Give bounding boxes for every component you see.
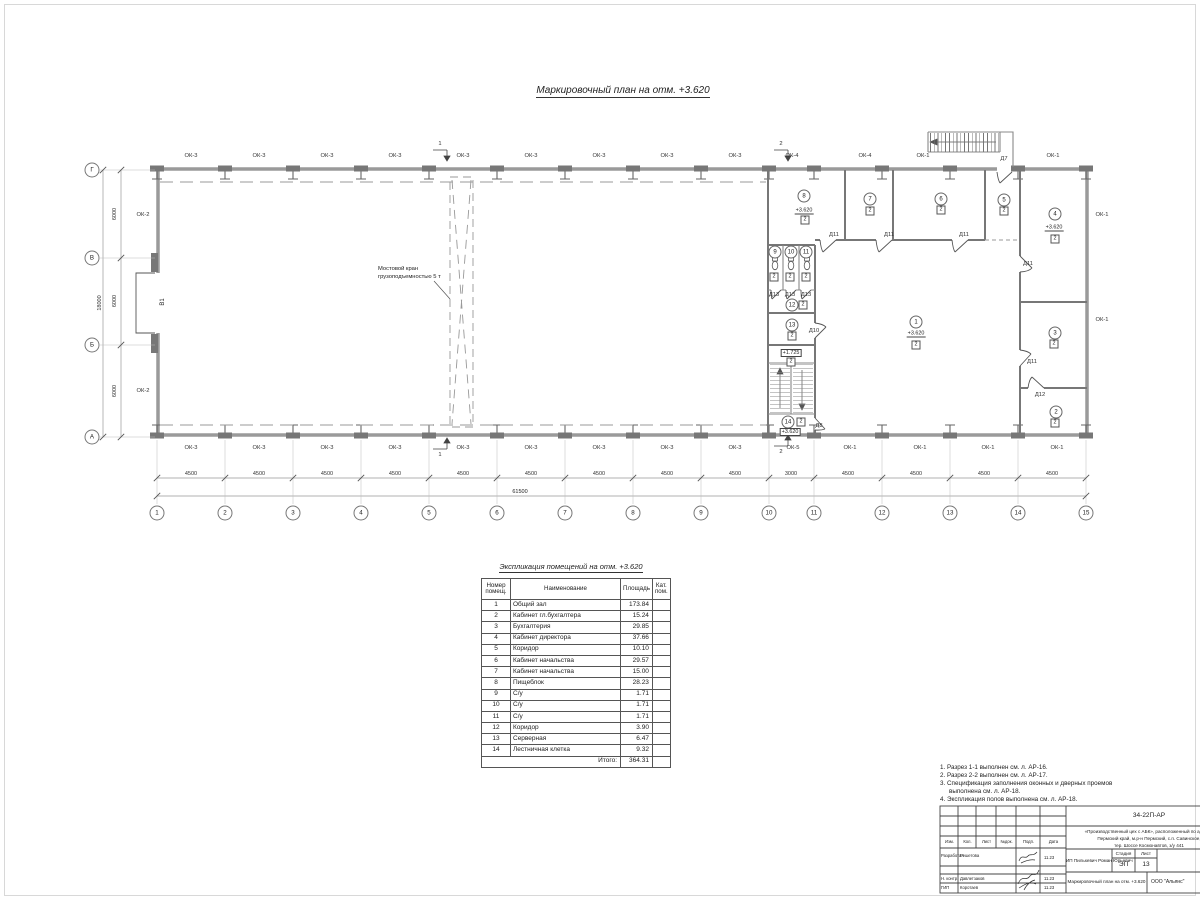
table-row: 2 Кабинет гл.бухгалтера 15.24 (482, 611, 671, 622)
cell-cat (652, 622, 670, 633)
date-developer: 11.23 (1044, 855, 1054, 860)
grid-bubble: 15 (1079, 506, 1094, 521)
sheet-number: 13 (1135, 861, 1157, 868)
col-data: Дата (1041, 839, 1066, 844)
window-label: ОК-3 (320, 445, 333, 451)
category-box: 2 (787, 358, 796, 367)
col-header-name: Наименование (511, 579, 621, 600)
cell-name: Кабинет директора (511, 633, 621, 644)
cell-cat (652, 655, 670, 666)
window-label: ОК-3 (592, 153, 605, 159)
doc-number: 34-22П-АР (1066, 812, 1200, 819)
section-digit: 2 (779, 141, 782, 147)
window-label: ОК-3 (592, 445, 605, 451)
cell-area: 1.71 (621, 700, 653, 711)
project-desc-3: тер. Шоссе Космонавтов, з/у 441 (1066, 843, 1200, 848)
grid-bubble: Г (85, 163, 100, 178)
table-row: 6 Кабинет начальства 29.57 (482, 655, 671, 666)
cell-name: Серверная (511, 734, 621, 745)
grid-bubble: 11 (807, 506, 822, 521)
col-kol: Кол. (959, 839, 976, 844)
col-header-area: Площадь (621, 579, 653, 600)
room-number: 3 (1049, 327, 1062, 340)
grid-bubble: 2 (218, 506, 233, 521)
window-label: ОК-3 (524, 153, 537, 159)
window-label: ОК-3 (660, 445, 673, 451)
role-gip: ГИП (941, 885, 949, 890)
stair-flight-right (793, 364, 813, 413)
cell-cat (652, 644, 670, 655)
crane (160, 177, 766, 427)
door-label: Д11 (959, 232, 969, 238)
dimension-text: 4500 (321, 471, 333, 477)
notes-block: 1. Разрез 1-1 выполнен см. л. АР-16.2. Р… (940, 764, 1116, 804)
category-box: 2 (1051, 419, 1060, 428)
cell-cat (652, 678, 670, 689)
category-box: 2 (799, 301, 808, 310)
dimension-text: 4500 (389, 471, 401, 477)
page-title: Маркировочный план на отм. +3.620 (473, 80, 773, 98)
room-number: 5 (998, 194, 1011, 207)
cell-cat (652, 723, 670, 734)
table-row: 9 С/у 1.71 (482, 689, 671, 700)
category-box: 2 (788, 332, 797, 341)
cell-num: 11 (482, 711, 511, 722)
grid-bubble: 9 (694, 506, 709, 521)
door-label: Д11 (1023, 261, 1033, 267)
room-number: 1 (910, 316, 923, 329)
dimension-text: 18000 (97, 295, 103, 310)
cell-area: 28.23 (621, 678, 653, 689)
cell-area: 29.85 (621, 622, 653, 633)
toilet-symbols (772, 258, 810, 270)
room-number: 10 (785, 246, 798, 259)
cell-area: 9.32 (621, 745, 653, 756)
name-gip: Коротаев (960, 885, 978, 890)
stage-value: ЭП (1112, 861, 1135, 868)
room-number: 14 (782, 416, 795, 429)
window-label: ОК-1 (1050, 445, 1063, 451)
door-label: Д8 (815, 423, 822, 429)
cell-cat (652, 611, 670, 622)
cell-num: 4 (482, 633, 511, 644)
window-label: ОК-3 (728, 153, 741, 159)
dimension-text: 4500 (729, 471, 741, 477)
cell-cat (652, 689, 670, 700)
cell-num: 5 (482, 644, 511, 655)
cell-name: Бухгалтерия (511, 622, 621, 633)
grid-bubble: 3 (286, 506, 301, 521)
cell-num: 3 (482, 622, 511, 633)
room-number: 11 (800, 246, 813, 259)
door-label: Д7 (1000, 156, 1007, 162)
table-row: 1 Общий зал 173.84 (482, 600, 671, 611)
col-podp: Подп. (1017, 839, 1040, 844)
cell-area: 15.24 (621, 611, 653, 622)
window-label: ОК-3 (388, 153, 401, 159)
drawing-sheet: Маркировочный план на отм. +3.620 Экспли… (0, 0, 1200, 900)
door-label: Д13 (785, 292, 795, 298)
level-mark: +3.620 (907, 331, 926, 338)
dimension-text: 4500 (978, 471, 990, 477)
section-digit: 1 (438, 141, 441, 147)
cell-num: 6 (482, 655, 511, 666)
cell-num: 13 (482, 734, 511, 745)
grid-bubble: 7 (558, 506, 573, 521)
cell-name: Кабинет начальства (511, 667, 621, 678)
dimension-text: 4500 (593, 471, 605, 477)
cell-area: 15.00 (621, 667, 653, 678)
note-line: 4. Экспликация полов выполнена см. л. АР… (940, 796, 1116, 804)
stage-label: Стадия (1112, 851, 1135, 856)
project-desc-2: Пермский край, м.р-н Пермский, с.п. Сави… (1066, 836, 1200, 841)
category-box: 2 (912, 341, 921, 350)
name-ncontrol: Давлетзаков (960, 876, 985, 881)
cell-name: С/у (511, 700, 621, 711)
cell-name: Общий зал (511, 600, 621, 611)
grid-bubble: 14 (1011, 506, 1026, 521)
cell-cat (652, 745, 670, 756)
room-number: 2 (1050, 406, 1063, 419)
table-row: 7 Кабинет начальства 15.00 (482, 667, 671, 678)
room-explication-table: Номер помещ. Наименование Площадь Кат. п… (481, 578, 671, 768)
window-label: ОК-3 (660, 153, 673, 159)
signatures (1018, 852, 1039, 890)
cell-num: 1 (482, 600, 511, 611)
dimension-text: 4500 (661, 471, 673, 477)
room-number: 12 (786, 299, 799, 312)
category-box: 2 (1050, 340, 1059, 349)
cell-num: 14 (482, 745, 511, 756)
category-box: 2 (797, 418, 806, 427)
total-value: 364.31 (621, 756, 653, 767)
category-box: 2 (786, 273, 795, 282)
cell-area: 10.10 (621, 644, 653, 655)
crane-annotation-line: грузоподъемностью 5 т (378, 274, 441, 282)
grid-bubble: В (85, 251, 100, 266)
level-mark: +3.620 (1045, 225, 1064, 232)
table-title: Экспликация помещений на отм. +3.620 (441, 556, 701, 574)
cell-name: Кабинет начальства (511, 655, 621, 666)
level-mark: +3.620 (795, 208, 814, 215)
table-row: 14 Лестничная клетка 9.32 (482, 745, 671, 756)
cell-num: 7 (482, 667, 511, 678)
grid-bubble: 6 (490, 506, 505, 521)
cell-area: 1.71 (621, 689, 653, 700)
cell-area: 6.47 (621, 734, 653, 745)
grid-bubble: 8 (626, 506, 641, 521)
table-row: 5 Коридор 10.10 (482, 644, 671, 655)
window-label: ОК-3 (252, 153, 265, 159)
dimension-text: 4500 (457, 471, 469, 477)
grid-bubble: 12 (875, 506, 890, 521)
window-label: ОК-3 (388, 445, 401, 451)
total-row: Итого: 364.31 (482, 756, 671, 767)
table-row: 12 Коридор 3.90 (482, 723, 671, 734)
level-mark: +1.725 (781, 349, 802, 357)
table-row: 10 С/у 1.71 (482, 700, 671, 711)
window-label: ОК-3 (456, 445, 469, 451)
window-label: ОК-1 (981, 445, 994, 451)
project-desc-1: «Производственный цех с АБК», расположен… (1066, 829, 1200, 834)
org-name: ООО "Альянс" (1151, 879, 1184, 885)
category-box: 2 (770, 273, 779, 282)
table-row: 3 Бухгалтерия 29.85 (482, 622, 671, 633)
cell-name: Коридор (511, 644, 621, 655)
crane-annotation-line: Мостовой кран (378, 266, 441, 274)
sheet-label: Лист (1135, 851, 1157, 856)
table-row: 13 Серверная 6.47 (482, 734, 671, 745)
client-name: ИП Пилькевич Роман Юрьевич (1066, 858, 1112, 863)
window-label: ОК-3 (728, 445, 741, 451)
window-label: ОК-1 (1095, 212, 1108, 218)
total-dimension: 61500 (512, 489, 527, 495)
stair-flight-left (770, 364, 790, 413)
window-label: ОК-1 (1046, 153, 1059, 159)
grid-bubble: Б (85, 338, 100, 353)
cell-name: Коридор (511, 723, 621, 734)
dimension-text: 4500 (525, 471, 537, 477)
cell-name: Лестничная клетка (511, 745, 621, 756)
cell-cat (652, 600, 670, 611)
window-label: ОК-3 (184, 153, 197, 159)
cell-num: 8 (482, 678, 511, 689)
grid-bubble: 13 (943, 506, 958, 521)
dimension-text: 4500 (910, 471, 922, 477)
door-label: Д10 (809, 328, 819, 334)
category-box: 2 (802, 273, 811, 282)
grid-bubble: 1 (150, 506, 165, 521)
category-box: 2 (1000, 207, 1009, 216)
cell-cat (652, 667, 670, 678)
cell-name: Пищеблок (511, 678, 621, 689)
dimension-text: 4500 (253, 471, 265, 477)
cell-num: 2 (482, 611, 511, 622)
door-label: Д11 (884, 232, 894, 238)
cell-area: 37.66 (621, 633, 653, 644)
dimension-text: 4500 (842, 471, 854, 477)
dimension-text: 4500 (185, 471, 197, 477)
dimension-text: 6000 (112, 385, 118, 397)
category-box: 2 (937, 206, 946, 215)
note-line: 1. Разрез 1-1 выполнен см. л. АР-16. (940, 764, 1116, 772)
role-ncontrol: Н. контр. (941, 876, 958, 881)
dimension-text: 4500 (1046, 471, 1058, 477)
category-box: 2 (1051, 235, 1060, 244)
section-digit: 2 (779, 449, 782, 455)
level-mark: +3.620 (780, 428, 801, 436)
cell-cat (652, 633, 670, 644)
section-digit: 1 (438, 452, 441, 458)
room-number: 13 (786, 319, 799, 332)
col-list: Лист (977, 839, 996, 844)
grid-bubble: 5 (422, 506, 437, 521)
columns (150, 166, 1093, 439)
window-label: ОК-2 (136, 388, 149, 394)
cell-name: С/у (511, 711, 621, 722)
col-header-num: Номер помещ. (482, 579, 511, 600)
dimension-text: 6000 (112, 208, 118, 220)
cell-num: 9 (482, 689, 511, 700)
window-label: ОК-2 (136, 212, 149, 218)
gate-label: В1 (160, 298, 166, 305)
door-label: Д13 (801, 292, 811, 298)
window-label: ОК-3 (184, 445, 197, 451)
dimension-text: 3000 (785, 471, 797, 477)
cell-name: Кабинет гл.бухгалтера (511, 611, 621, 622)
cell-num: 10 (482, 700, 511, 711)
window-label: ОК-1 (843, 445, 856, 451)
window-label: ОК-3 (456, 153, 469, 159)
room-number: 9 (769, 246, 782, 259)
crane-annotation: Мостовой кран грузоподъемностью 5 т (378, 266, 441, 281)
col-header-cat: Кат. пом. (652, 579, 670, 600)
window-label: ОК-3 (252, 445, 265, 451)
cell-area: 173.84 (621, 600, 653, 611)
window-label: ОК-1 (913, 445, 926, 451)
exterior-walls (155, 166, 1088, 436)
col-izm: Изм. (941, 839, 958, 844)
dimension-text: 6000 (112, 295, 118, 307)
cell-cat (652, 711, 670, 722)
cell-cat (652, 734, 670, 745)
room-number: 8 (798, 190, 811, 203)
door-label: Д13 (769, 292, 779, 298)
window-label: ОК-3 (524, 445, 537, 451)
cell-cat (652, 700, 670, 711)
table-row: 4 Кабинет директора 37.66 (482, 633, 671, 644)
window-label: ОК-1 (916, 153, 929, 159)
sheet-name: Маркировочный план на отм. +3.620 (1066, 879, 1147, 884)
exterior-stair-treads (930, 133, 1000, 152)
window-label: ОК-1 (1095, 317, 1108, 323)
name-developer: Решетова (960, 853, 979, 858)
window-label: ОК-3 (320, 153, 333, 159)
window-label: ОК-5 (786, 445, 799, 451)
section-marks (433, 150, 791, 449)
cell-num: 12 (482, 723, 511, 734)
category-box: 2 (866, 207, 875, 216)
door-label: Д11 (829, 232, 839, 238)
cell-area: 1.71 (621, 711, 653, 722)
col-doc: №док. (997, 839, 1016, 844)
cell-name: С/у (511, 689, 621, 700)
door-label: Д11 (1027, 359, 1037, 365)
room-number: 6 (935, 193, 948, 206)
grid-bubble: 4 (354, 506, 369, 521)
window-label: ОК-4 (785, 153, 798, 159)
cell-area: 3.90 (621, 723, 653, 734)
grid-bubble: 10 (762, 506, 777, 521)
room-number: 4 (1049, 208, 1062, 221)
table-row: 8 Пищеблок 28.23 (482, 678, 671, 689)
date-ncontrol: 11.23 (1044, 876, 1054, 881)
category-box: 2 (801, 216, 810, 225)
table-row: 11 С/у 1.71 (482, 711, 671, 722)
window-label: ОК-4 (858, 153, 871, 159)
total-cat (652, 756, 670, 767)
note-line: 3. Спецификация заполнения оконных и две… (940, 780, 1116, 796)
grid-bubble: А (85, 430, 100, 445)
note-line: 2. Разрез 2-2 выполнен см. л. АР-17. (940, 772, 1116, 780)
cell-area: 29.57 (621, 655, 653, 666)
room-number: 7 (864, 193, 877, 206)
door-label: Д12 (1035, 392, 1045, 398)
date-gip: 11.23 (1044, 885, 1054, 890)
total-label: Итого: (482, 756, 621, 767)
